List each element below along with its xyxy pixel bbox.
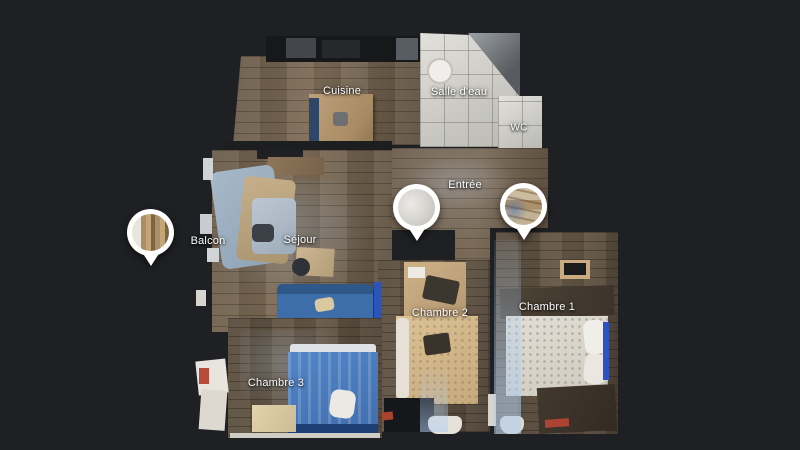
pano-pin-entree-left[interactable] xyxy=(393,184,440,241)
pin-ring xyxy=(127,209,174,256)
room-label-chambre-1: Chambre 1 xyxy=(519,301,575,313)
room-label-wc: WC xyxy=(510,123,527,134)
pin-photo-wall xyxy=(398,189,435,226)
balcony-railing-stub xyxy=(196,290,206,306)
chambre1-threshold-red xyxy=(545,418,569,428)
kitchen-cooktop xyxy=(322,40,360,58)
wall-stub-white xyxy=(488,394,496,426)
sejour-sideboard xyxy=(268,157,324,175)
desk-chair xyxy=(292,258,310,276)
room-label-chambre-2: Chambre 2 xyxy=(412,307,468,319)
balcony-railing-stub xyxy=(203,158,213,180)
chambre3-baseboard xyxy=(230,433,380,438)
floorplan-3d-view[interactable]: Cuisine Salle d'eau WC Entrée Balcon Séj… xyxy=(0,0,800,450)
chambre2-bed-object xyxy=(423,332,452,355)
kitchen-appliance xyxy=(286,38,316,58)
chambre3-side-object xyxy=(199,389,228,431)
chambre3-dresser xyxy=(252,405,296,432)
chambre2-pillows xyxy=(396,318,409,398)
pano-pin-balcon[interactable] xyxy=(127,209,174,266)
chambre2-threshold-red xyxy=(381,411,394,420)
balcony-railing-stub xyxy=(207,248,219,262)
room-label-entree: Entrée xyxy=(448,179,482,191)
balcony-railing-stub xyxy=(200,214,212,234)
chambre2-door xyxy=(428,416,462,434)
pin-ring xyxy=(500,183,547,230)
radiator-blue xyxy=(603,322,609,380)
kitchen-island-object xyxy=(333,112,348,126)
pin-ring xyxy=(393,184,440,231)
room-label-salle-deau: Salle d'eau xyxy=(431,86,487,98)
chambre3-pillow xyxy=(328,388,357,419)
kitchen-fridge xyxy=(396,38,418,60)
room-label-chambre-3: Chambre 3 xyxy=(248,377,304,389)
room-label-balcon: Balcon xyxy=(191,235,226,247)
pin-photo-curtains xyxy=(132,214,169,251)
chambre3-red-object xyxy=(199,368,209,384)
dining-chair xyxy=(252,224,274,242)
bathroom-sink xyxy=(427,58,453,84)
pin-photo-shelves xyxy=(505,188,542,225)
room-label-cuisine: Cuisine xyxy=(323,85,361,97)
chambre1-tv xyxy=(564,263,586,275)
chambre2-paper xyxy=(408,267,425,278)
pano-pin-entree-right[interactable] xyxy=(500,183,547,240)
chambre1-door xyxy=(500,416,524,434)
radiator-blue xyxy=(374,282,381,322)
room-label-sejour: Séjour xyxy=(284,234,317,246)
kitchen-island-side xyxy=(309,98,319,144)
